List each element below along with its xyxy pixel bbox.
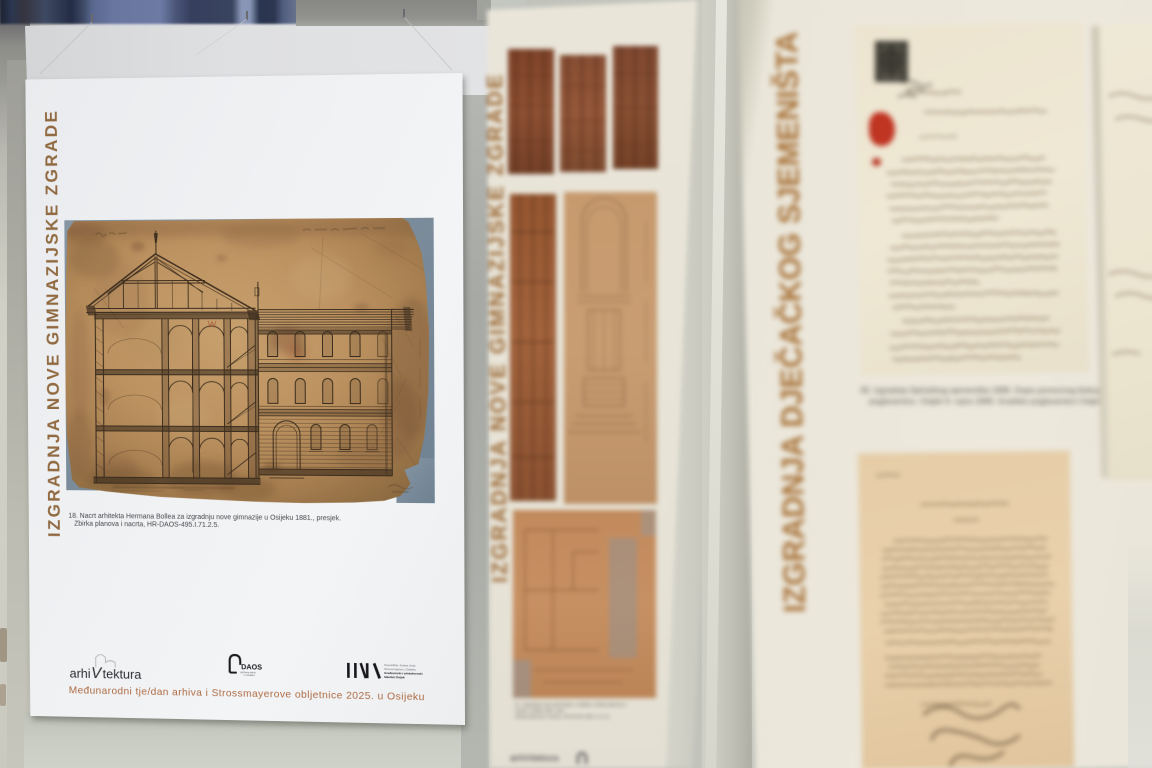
svg-text:arhi: arhi <box>70 666 91 681</box>
svg-text:U OSIJEKU: U OSIJEKU <box>244 675 256 677</box>
svg-text:DRŽAVNI ARHIV: DRŽAVNI ARHIV <box>240 671 257 674</box>
svg-text:tektura: tektura <box>103 666 143 682</box>
svg-text:V: V <box>91 665 103 682</box>
svg-text:DAOS: DAOS <box>241 663 262 671</box>
svg-text:fakultet Osijek: fakultet Osijek <box>384 675 405 679</box>
